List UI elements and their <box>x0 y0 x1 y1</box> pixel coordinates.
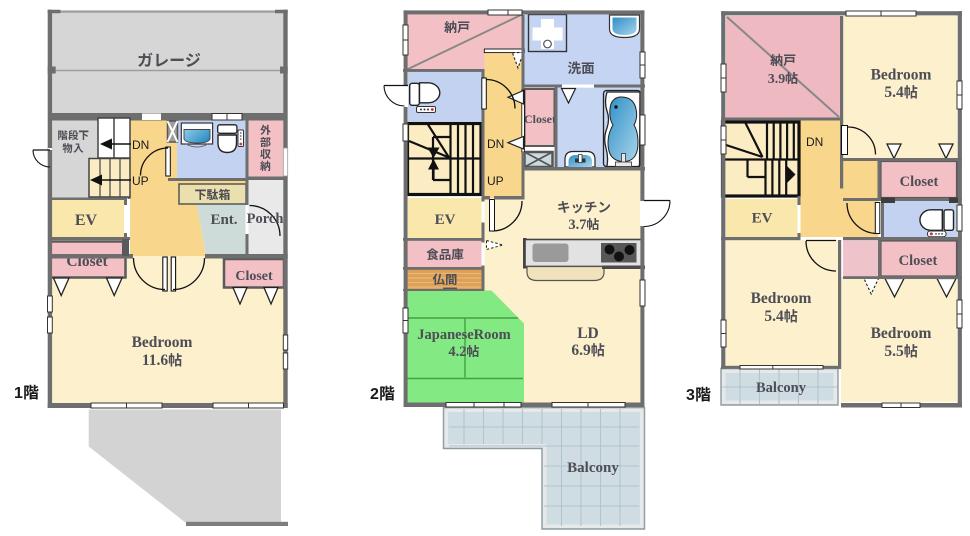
svg-text:ガレージ: ガレージ <box>137 47 201 71</box>
svg-text:DN: DN <box>487 137 504 151</box>
svg-text:Balcony: Balcony <box>756 380 807 396</box>
svg-text:2階: 2階 <box>370 380 395 404</box>
svg-text:5.5帖: 5.5帖 <box>884 341 917 361</box>
svg-text:洗面: 洗面 <box>568 57 595 77</box>
svg-text:EV: EV <box>75 212 98 229</box>
svg-text:Closet: Closet <box>235 269 273 284</box>
svg-text:UP: UP <box>132 174 149 188</box>
svg-text:Bedroom: Bedroom <box>871 325 932 342</box>
svg-text:5.4帖: 5.4帖 <box>764 306 797 326</box>
svg-text:物入: 物入 <box>63 141 84 156</box>
svg-text:Closet: Closet <box>900 174 939 190</box>
svg-text:Ent.: Ent. <box>210 212 237 228</box>
svg-text:Balcony: Balcony <box>567 460 619 476</box>
svg-text:納戸: 納戸 <box>770 50 796 69</box>
svg-text:キッチン: キッチン <box>557 196 611 216</box>
svg-text:納: 納 <box>260 158 271 174</box>
svg-text:4.2帖: 4.2帖 <box>448 341 479 360</box>
svg-text:UP: UP <box>487 174 504 188</box>
svg-text:11.6帖: 11.6帖 <box>142 350 182 370</box>
svg-text:1階: 1階 <box>14 379 39 403</box>
svg-text:DN: DN <box>132 138 149 152</box>
svg-text:仏間: 仏間 <box>432 269 457 288</box>
svg-text:下駄箱: 下駄箱 <box>194 186 230 203</box>
svg-text:Bedroom: Bedroom <box>871 67 932 84</box>
svg-text:Porch: Porch <box>247 211 284 227</box>
svg-text:EV: EV <box>752 211 773 227</box>
svg-text:DN: DN <box>806 135 823 149</box>
svg-text:納戸: 納戸 <box>444 17 470 36</box>
svg-text:6.9帖: 6.9帖 <box>571 340 604 360</box>
svg-text:EV: EV <box>435 212 456 228</box>
svg-text:3.7帖: 3.7帖 <box>568 214 599 233</box>
svg-text:JapaneseRoom: JapaneseRoom <box>417 327 510 343</box>
svg-text:Bedroom: Bedroom <box>132 334 193 351</box>
svg-text:Closet: Closet <box>524 112 556 126</box>
svg-text:Closet: Closet <box>899 253 938 269</box>
svg-text:食品庫: 食品庫 <box>426 244 464 263</box>
svg-text:3階: 3階 <box>686 381 711 405</box>
svg-text:5.4帖: 5.4帖 <box>884 82 917 102</box>
svg-text:Bedroom: Bedroom <box>751 290 812 307</box>
